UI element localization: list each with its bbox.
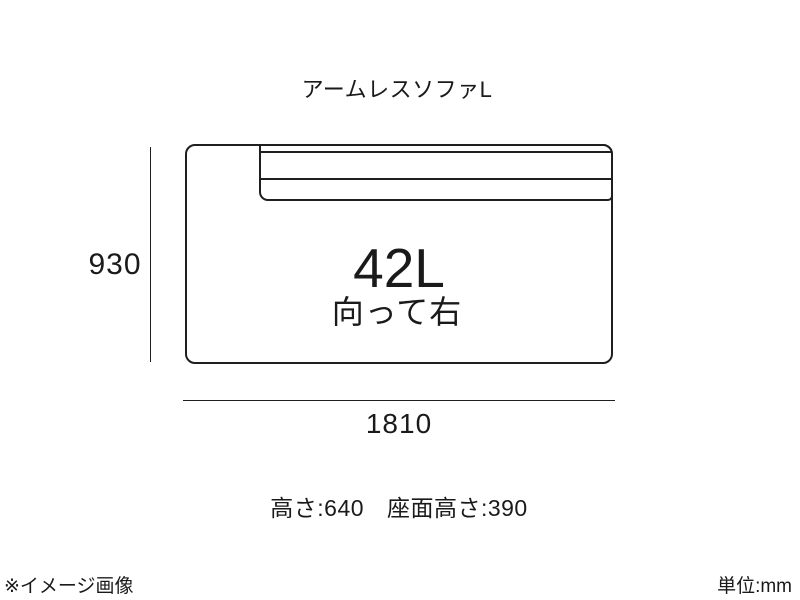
seat-height-spec: 座面高さ:390: [387, 495, 528, 521]
height-spec: 高さ:640: [270, 495, 364, 521]
orientation-label: 向って右: [332, 287, 462, 333]
product-diagram-page: アームレスソファL 42L 向って右 930 1810 高さ:640 座面高さ:…: [0, 0, 800, 600]
image-disclaimer-note: ※イメージ画像: [4, 571, 134, 598]
width-dimension-label: 1810: [366, 408, 432, 440]
page-title: アームレスソファL: [302, 72, 493, 104]
width-dimension-line: [183, 400, 615, 401]
backrest-seam-line-top: [261, 151, 611, 153]
depth-dimension-line: [150, 147, 151, 362]
unit-label: 単位:mm: [717, 571, 792, 598]
depth-dimension-label: 930: [88, 248, 141, 282]
height-specs: 高さ:640 座面高さ:390: [270, 489, 527, 523]
backrest-seam-line-bottom: [261, 178, 611, 180]
